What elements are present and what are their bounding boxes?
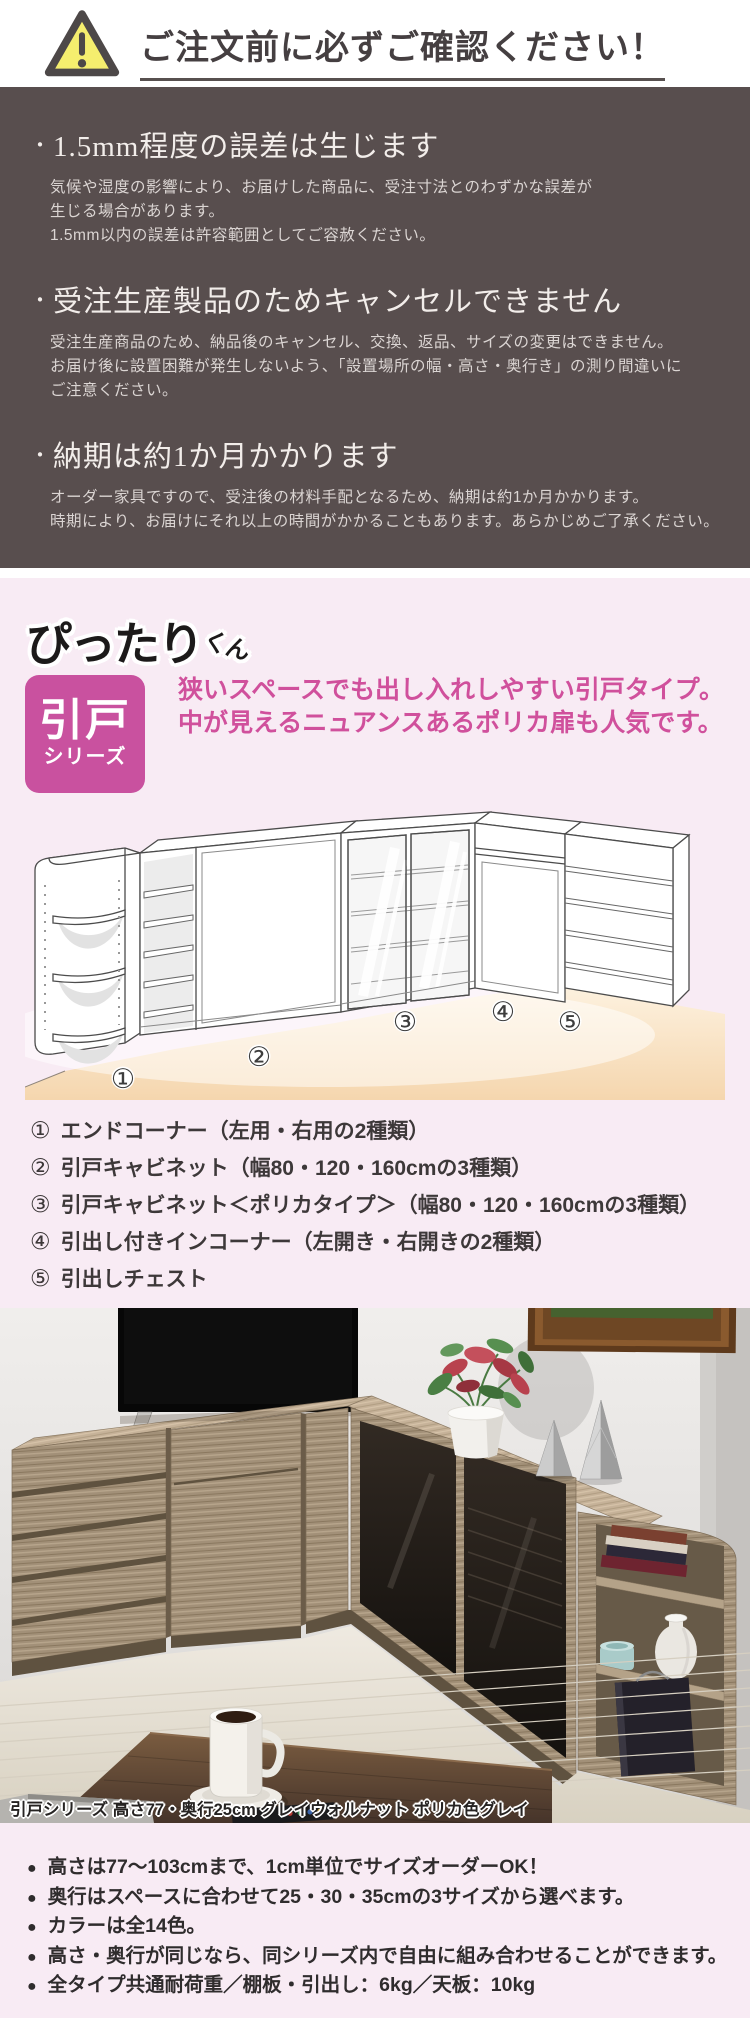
bullet-icon: ● bbox=[27, 1972, 37, 2002]
bullet-icon: ● bbox=[27, 1884, 37, 1914]
note-line: オーダー家具ですので、受注後の材料手配となるため、納期は約1か月かかります。 bbox=[50, 486, 720, 510]
note-line: 気候や湿度の影響により、お届けした商品に、受注寸法とのわずかな誤差が bbox=[50, 176, 720, 200]
diagram-glass-cabinet bbox=[341, 812, 490, 1012]
photo-caption: 引戸シリーズ 高さ77・奥行25cm グレイウォルナット ポリカ色グレイ bbox=[10, 1796, 529, 1820]
svg-text:②: ② bbox=[247, 1042, 271, 1073]
svg-text:⑤: ⑤ bbox=[558, 1007, 582, 1038]
diagram-drawer-chest bbox=[565, 822, 689, 1006]
black-box bbox=[614, 1670, 695, 1777]
legend-item: ④引出し付きインコーナー（左開き・右開きの2種類） bbox=[30, 1223, 700, 1260]
note-line: お届け後に設置困難が発生しないよう、「設置場所の幅・高さ・奥行き」の測り間違いに bbox=[50, 355, 720, 379]
sliding-wood-door bbox=[171, 1408, 348, 1636]
legend-item: ②引戸キャビネット（幅80・120・160cmの3種類） bbox=[30, 1149, 700, 1186]
diagram-end-corner bbox=[35, 848, 140, 1064]
warning-triangle-icon bbox=[44, 8, 120, 80]
feature-item: ●全タイプ共通耐荷重／棚板・引出し：6kg／天板：10kg bbox=[27, 1971, 750, 2001]
plant-pot bbox=[448, 1406, 504, 1459]
feature-item: ●カラーは全14色。 bbox=[27, 1912, 750, 1942]
bullet-dot: ・ bbox=[30, 445, 51, 467]
note-heading: ・1.5mm程度の誤差は生じます bbox=[30, 123, 720, 165]
corner-shelf-unit bbox=[578, 1512, 736, 1805]
bullet-dot: ・ bbox=[30, 135, 51, 157]
svg-text:③: ③ bbox=[393, 1007, 417, 1038]
order-notes: ・1.5mm程度の誤差は生じます 気候や湿度の影響により、お届けした商品に、受注… bbox=[0, 87, 750, 568]
bullet-icon: ● bbox=[27, 1913, 37, 1943]
notice-title: ご注文前に必ずご確認ください！ bbox=[140, 20, 665, 81]
bullet-icon: ● bbox=[27, 1854, 37, 1884]
bullet-icon: ● bbox=[27, 1943, 37, 1973]
feature-item: ●奥行はスペースに合わせて25・30・35cmの3サイズから選べます。 bbox=[27, 1883, 750, 1913]
legend-item: ③引戸キャビネット＜ポリカタイプ＞（幅80・120・160cmの3種類） bbox=[30, 1186, 700, 1223]
svg-text:①: ① bbox=[111, 1064, 135, 1095]
note-line: 時期により、お届けにそれ以上の時間がかかることもあります。あらかじめご了承くださ… bbox=[50, 510, 720, 534]
series-badge: 引戸 シリーズ bbox=[25, 675, 145, 793]
picture-frame bbox=[528, 1308, 737, 1353]
room-scene bbox=[0, 1308, 750, 1823]
note-tolerance: ・1.5mm程度の誤差は生じます 気候や湿度の影響により、お届けした商品に、受注… bbox=[30, 123, 720, 248]
note-line: 受注生産商品のため、納品後のキャンセル、交換、返品、サイズの変更はできません。 bbox=[50, 331, 720, 355]
svg-text:④: ④ bbox=[491, 997, 515, 1028]
note-heading: ・受注生産製品のためキャンセルできません bbox=[30, 278, 720, 320]
note-heading: ・納期は約1か月かかります bbox=[30, 433, 720, 475]
note-line: ご注意ください。 bbox=[50, 379, 720, 403]
series-badge-line2: シリーズ bbox=[25, 744, 145, 770]
brand-logo-main: ぴったり bbox=[26, 618, 202, 670]
series-badge-line1: 引戸 bbox=[25, 698, 145, 744]
feature-item: ●高さ・奥行が同じなら、同シリーズ内で自由に組み合わせることができます。 bbox=[27, 1942, 750, 1972]
white-divider bbox=[0, 568, 750, 578]
product-page: ご注文前に必ずご確認ください！ ・1.5mm程度の誤差は生じます 気候や湿度の影… bbox=[0, 0, 750, 2018]
legend-item: ⑤引出しチェスト bbox=[30, 1260, 700, 1297]
note-line: 生じる場合があります。 bbox=[50, 200, 720, 224]
feature-list: ●高さは77〜103cmまで、1cm単位でサイズオーダーOK！ ●奥行はスペース… bbox=[0, 1823, 750, 2018]
product-photo: 引戸シリーズ 高さ77・奥行25cm グレイウォルナット ポリカ色グレイ bbox=[0, 1308, 750, 1823]
brand-logo-suffix: くん bbox=[200, 620, 254, 666]
brand-logo: ぴったりくん bbox=[26, 608, 250, 674]
diagram-sliding-cabinet bbox=[140, 821, 356, 1035]
series-diagram: ① ② ③ ④ ⑤ bbox=[25, 790, 725, 1100]
diagram-legend: ①エンドコーナー（左用・右用の2種類） ②引戸キャビネット（幅80・120・16… bbox=[30, 1112, 700, 1297]
series-description: 狭いスペースでも出し入れしやすい引戸タイプ。 中が見えるニュアンスあるポリカ扉も… bbox=[178, 674, 724, 740]
note-cancel: ・受注生産製品のためキャンセルできません 受注生産商品のため、納品後のキャンセル… bbox=[30, 278, 720, 403]
note-line: 1.5mm以内の誤差は許容範囲としてご容赦ください。 bbox=[50, 224, 720, 248]
series-intro: ぴったりくん 引戸 シリーズ 狭いスペースでも出し入れしやすい引戸タイプ。 中が… bbox=[0, 578, 750, 1308]
notice-header: ご注文前に必ずご確認ください！ bbox=[0, 0, 750, 87]
bullet-dot: ・ bbox=[30, 290, 51, 312]
note-delivery: ・納期は約1か月かかります オーダー家具ですので、受注後の材料手配となるため、納… bbox=[30, 433, 720, 534]
feature-item: ●高さは77〜103cmまで、1cm単位でサイズオーダーOK！ bbox=[27, 1853, 750, 1883]
legend-item: ①エンドコーナー（左用・右用の2種類） bbox=[30, 1112, 700, 1149]
teal-cup bbox=[600, 1641, 634, 1670]
corner-drawer-chest bbox=[12, 1428, 171, 1662]
